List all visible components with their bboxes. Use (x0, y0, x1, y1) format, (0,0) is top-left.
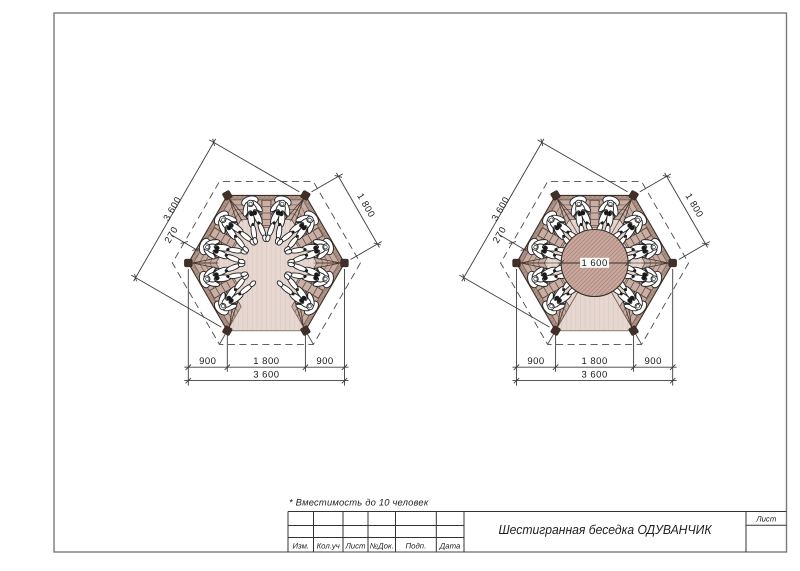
svg-text:* Вместимость до 10 человек: * Вместимость до 10 человек (289, 497, 429, 508)
svg-text:900: 900 (645, 356, 662, 367)
svg-text:900: 900 (199, 356, 216, 367)
svg-text:№Док.: №Док. (370, 542, 394, 551)
svg-text:Шестигранная беседка ОДУВАНЧИК: Шестигранная беседка ОДУВАНЧИК (499, 522, 713, 537)
svg-text:3 600: 3 600 (581, 369, 607, 380)
svg-text:Дата: Дата (439, 542, 461, 551)
svg-text:Лист: Лист (344, 542, 366, 551)
svg-text:Кол.уч: Кол.уч (317, 542, 340, 551)
svg-text:3 600: 3 600 (253, 369, 279, 380)
svg-text:1 800: 1 800 (581, 356, 607, 367)
svg-text:Лист: Лист (755, 515, 777, 524)
svg-text:1 800: 1 800 (253, 356, 279, 367)
svg-text:900: 900 (316, 356, 333, 367)
svg-text:Подп.: Подп. (406, 542, 427, 551)
svg-text:900: 900 (527, 356, 544, 367)
svg-text:Изм.: Изм. (292, 542, 309, 551)
svg-text:1 600: 1 600 (581, 258, 607, 269)
